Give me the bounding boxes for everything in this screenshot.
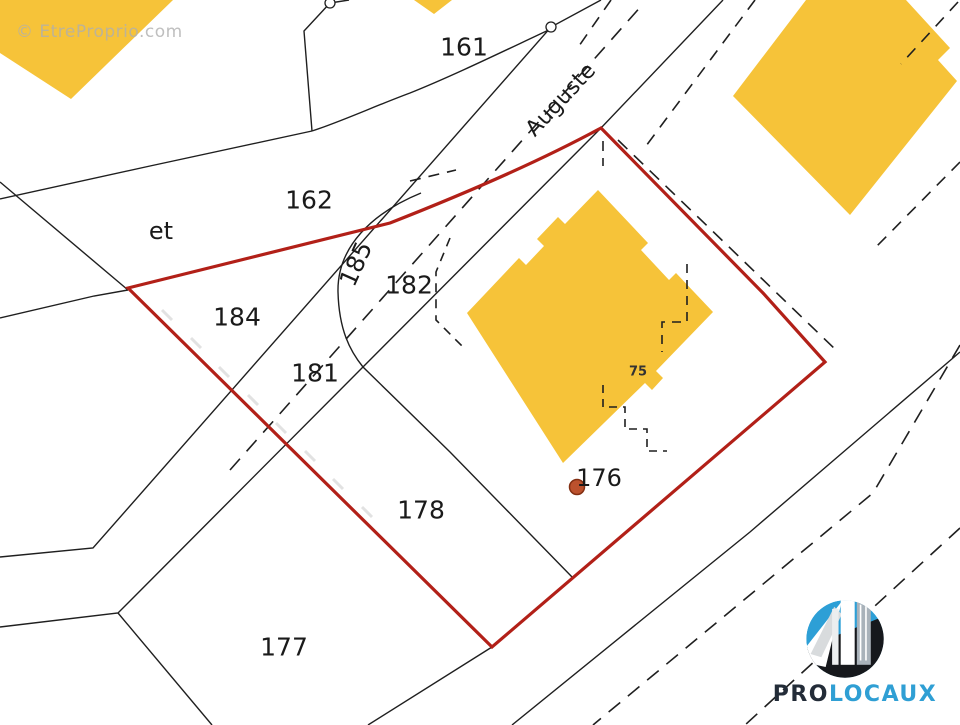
hatch-tick: [276, 423, 286, 433]
dash-northeast-2: [579, 0, 611, 46]
logo-tower-center: [841, 596, 855, 665]
building-central: [467, 190, 713, 463]
watermark: © EtreProprio.com: [16, 22, 183, 42]
hatch-tick: [162, 310, 172, 320]
prolocaux-logo-text: PROLOCAUX: [770, 682, 940, 707]
dash-northeast-1: [643, 0, 755, 150]
parcel-curve-161: [312, 28, 553, 131]
parcel-line-et-north: [0, 182, 128, 290]
road-edge-south: [368, 647, 492, 725]
parcel-label-et: et: [149, 217, 173, 245]
building-overhang-west: [436, 238, 466, 350]
parcel-label-182: 182: [385, 271, 433, 300]
parcel-label-176: 176: [576, 464, 622, 492]
junction-circle: [546, 22, 556, 32]
parcel-label-161: 161: [440, 33, 488, 62]
dash-segment-162: [410, 170, 456, 181]
parcel-line-162-north: [0, 131, 312, 199]
junction-circle: [325, 0, 335, 8]
building-top-center: [414, 0, 452, 14]
hatch-tick: [305, 451, 315, 461]
parcel-label-162: 162: [285, 186, 333, 215]
parcel-label-75: 75: [629, 365, 647, 380]
prolocaux-logo: PROLOCAUX: [770, 596, 940, 711]
hatch-tick: [333, 479, 343, 489]
hatch-tick: [191, 338, 201, 348]
parcel-label-181: 181: [291, 359, 339, 388]
logo-tower-left: [832, 609, 838, 665]
parcel-label-178: 178: [397, 496, 445, 525]
prolocaux-logo-icon: [800, 596, 890, 682]
dash-topright-2: [876, 162, 960, 247]
hatch-tick: [219, 367, 229, 377]
parcel-line-et-south: [0, 290, 128, 318]
parcel-line-161-west: [304, 3, 330, 131]
parcel-label-184: 184: [213, 303, 261, 332]
logo-text-locaux: LOCAUX: [829, 682, 937, 707]
parcel-label-177: 177: [260, 633, 308, 662]
property-boundary-red: [128, 128, 825, 647]
cadastral-map-viewport: 161162et18418518218117817717675Auguste ©…: [0, 0, 960, 725]
logo-tower-right: [857, 599, 871, 665]
parcel-label-185: 185: [334, 237, 378, 290]
hatch-tick: [362, 507, 372, 517]
hatch-tick: [248, 395, 258, 405]
building-top-right: [733, 0, 957, 215]
street-name-label: Auguste: [521, 58, 601, 141]
building-top-left: [0, 0, 173, 99]
parcel-line-177-west: [118, 613, 212, 725]
logo-text-pro: PRO: [773, 682, 829, 707]
